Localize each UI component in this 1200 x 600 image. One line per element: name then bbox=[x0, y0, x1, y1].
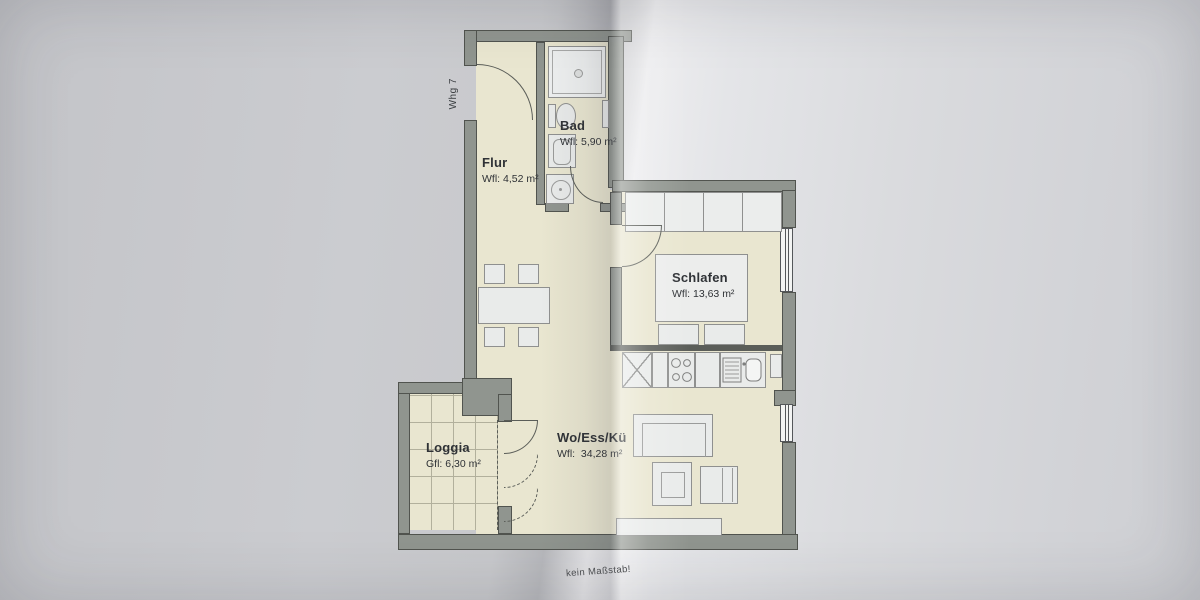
room-name: Schlafen bbox=[672, 270, 734, 285]
scale-note: kein Maßstab! bbox=[566, 564, 631, 579]
wall-bedroom-kitchen-divider bbox=[610, 345, 784, 351]
toilet-cistern bbox=[548, 104, 556, 128]
living-window bbox=[780, 404, 793, 442]
shower-drain-icon bbox=[574, 69, 583, 78]
room-name: Loggia bbox=[426, 440, 481, 455]
bedroom-window bbox=[780, 228, 793, 292]
bed-pillow-right bbox=[704, 324, 745, 345]
dining-chair bbox=[484, 264, 505, 284]
kitchen-counter-a bbox=[652, 352, 668, 388]
kitchen-sink bbox=[720, 352, 766, 388]
wall-right-upper bbox=[782, 190, 796, 228]
room-area: Wfl: 13,63 m² bbox=[672, 288, 734, 300]
armchair bbox=[700, 466, 738, 504]
bed-pillow-left bbox=[658, 324, 699, 345]
room-name: Wo/Ess/Kü bbox=[557, 430, 626, 445]
hob bbox=[668, 352, 695, 388]
room-label-schlafen: Schlafen Wfl: 13,63 m² bbox=[672, 270, 734, 300]
wall-loggia-left bbox=[398, 382, 410, 534]
kitchen-end-cabinet bbox=[770, 354, 782, 378]
living-window-glazing bbox=[785, 405, 789, 441]
kitchen-counter-b bbox=[695, 352, 720, 388]
dining-table bbox=[478, 287, 550, 324]
room-area: Gfl: 6,30 m² bbox=[426, 458, 481, 470]
dining-chair bbox=[518, 264, 539, 284]
wall-loggia-right-upper bbox=[498, 394, 512, 422]
sofa bbox=[633, 414, 713, 457]
wall-right-mid bbox=[782, 292, 796, 404]
coffee-table bbox=[652, 462, 692, 506]
wall-right-lower bbox=[782, 442, 796, 542]
wall-bedroom-left-lower bbox=[610, 267, 622, 350]
wall-bottom bbox=[398, 534, 798, 550]
wall-left-above-entrance bbox=[464, 30, 477, 66]
bedroom-window-glazing bbox=[785, 229, 789, 291]
room-area: Wfl: 5,90 m² bbox=[560, 136, 617, 148]
sideboard bbox=[616, 518, 722, 536]
apartment-label: Whg 7 bbox=[448, 78, 459, 109]
dining-chair bbox=[484, 327, 505, 347]
room-area: Wfl: 34,28 m² bbox=[557, 448, 626, 460]
room-area: Wfl: 4,52 m² bbox=[482, 173, 539, 185]
room-label-flur: Flur Wfl: 4,52 m² bbox=[482, 155, 539, 185]
wall-left-main bbox=[464, 120, 477, 386]
room-label-loggia: Loggia Gfl: 6,30 m² bbox=[426, 440, 481, 470]
shower bbox=[548, 46, 606, 98]
washing-machine bbox=[546, 174, 574, 204]
fridge-cabinet bbox=[622, 352, 652, 388]
room-name: Flur bbox=[482, 155, 539, 170]
loggia-threshold-dashed-line bbox=[497, 420, 498, 530]
wall-bedroom-top bbox=[612, 180, 796, 192]
room-label-wohnen: Wo/Ess/Kü Wfl: 34,28 m² bbox=[557, 430, 626, 460]
room-label-bad: Bad Wfl: 5,90 m² bbox=[560, 118, 617, 148]
dining-chair bbox=[518, 327, 539, 347]
wall-bad-bottom-left bbox=[545, 203, 569, 212]
floor-plan-photo: Whg 7 Flur Wfl: 4,52 m² Bad Wfl: 5,90 m²… bbox=[0, 0, 1200, 600]
wall-bad-right bbox=[608, 36, 624, 188]
wall-bedroom-left-upper bbox=[610, 192, 622, 225]
room-name: Bad bbox=[560, 118, 617, 133]
wall-top bbox=[464, 30, 632, 42]
